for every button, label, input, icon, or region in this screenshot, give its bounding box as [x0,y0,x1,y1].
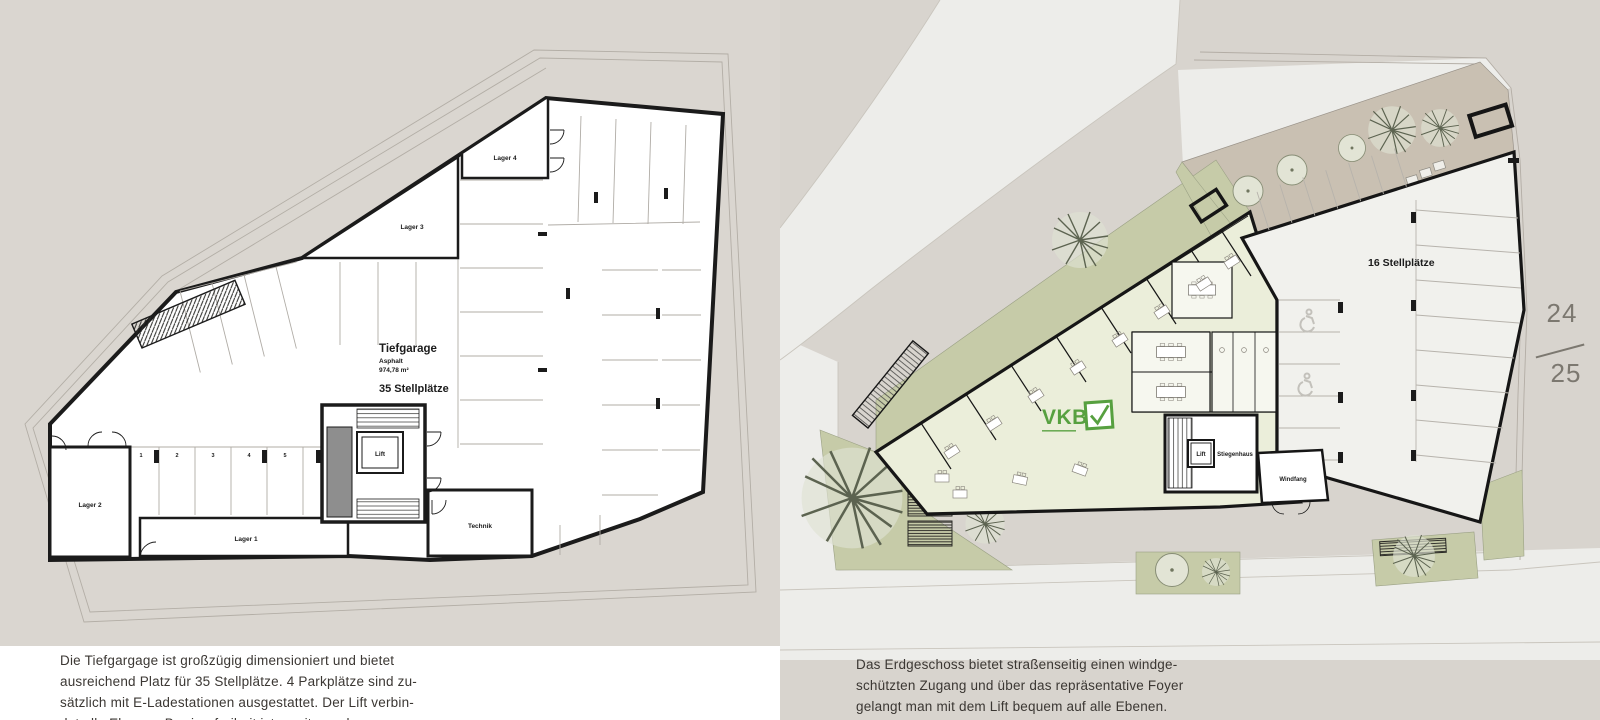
page-number-top: 24 [1536,298,1588,329]
vkb-logo: VKB [1042,401,1113,431]
erdgeschoss-site-plan: 16 Stellplätze Lift Stiegenhaus Windfang… [780,0,1600,720]
caption-line: Das Erdgeschoss bietet straßenseitig ein… [856,654,1286,675]
windfang-label: Windfang [1279,477,1307,483]
tree-icon [1393,535,1435,577]
stair-core: Lift [322,405,425,522]
plan-surface: Asphalt [379,358,404,365]
caption-line: sätzlich mit E-Ladestationen ausgestatte… [60,692,490,713]
caption-line: schützten Zugang und über das repräsenta… [856,675,1286,696]
plan-capacity: 35 Stellplätze [379,383,449,395]
technik-room: Technik [428,490,532,556]
lager2-label: Lager 2 [78,502,102,509]
vkb-check-icon [1085,401,1113,429]
lift-label: Lift [375,451,386,458]
svg-text:6: 6 [319,453,322,459]
lager1-room: Lager 1 [140,518,348,556]
page-number-bottom: 25 [1540,358,1592,389]
stair-core-eg: Lift Stiegenhaus [1165,415,1257,492]
plan-area: 974,78 m² [379,367,409,374]
shaft [327,427,352,517]
tree-icon [1339,135,1366,162]
technik-label: Technik [468,523,492,530]
lager3-room: Lager 3 [302,157,458,258]
brochure-spread: Lager 4 Lager 3 Lager 2 Lager 1 Technik … [0,0,1600,720]
vkb-tagline-mark [1042,430,1076,432]
caption-line: det alle Ebenen, Barrierefreiheit ist so… [60,713,490,720]
tree-icon [1368,106,1416,154]
stairs-lower [357,499,419,518]
caption-erdgeschoss: Das Erdgeschoss bietet straßenseitig ein… [856,654,1286,720]
tree-icon [1156,554,1189,587]
wc-block [1212,332,1277,412]
caption-tiefgarage: Die Tiefgargage ist großzügig dimensioni… [60,650,490,720]
plan-title: Tiefgarage [379,343,437,355]
svg-text:5: 5 [283,453,286,459]
lager1-label: Lager 1 [234,536,258,543]
caption-line: gelangt man mit dem Lift bequem auf alle… [856,696,1286,717]
tree-icon [1202,558,1230,586]
lift-eg-label: Lift [1196,452,1205,458]
svg-text:3: 3 [211,453,214,459]
svg-text:2: 2 [175,453,178,459]
tree-icon [1421,109,1459,147]
parkdeck-label: 16 Stellplätze [1368,257,1435,269]
tiefgarage-floor-plan: Lager 4 Lager 3 Lager 2 Lager 1 Technik … [0,0,780,646]
lager2-room: Lager 2 [50,447,130,557]
tree-icon [1277,155,1307,185]
tree-icon [1233,176,1263,206]
lager4-label: Lager 4 [493,155,517,162]
caption-line: ausreichend Platz für 35 Stellplätze. 4 … [60,671,490,692]
lager3-label: Lager 3 [400,224,424,231]
stiegenhaus-label: Stiegenhaus [1217,452,1253,458]
vkb-logo-text: VKB [1042,406,1088,429]
caption-line: Die Tiefgargage ist großzügig dimensioni… [60,650,490,671]
stairs-upper [357,409,419,428]
tree-icon [1052,212,1108,268]
svg-text:1: 1 [139,453,142,459]
lager4-room: Lager 4 [462,98,548,178]
